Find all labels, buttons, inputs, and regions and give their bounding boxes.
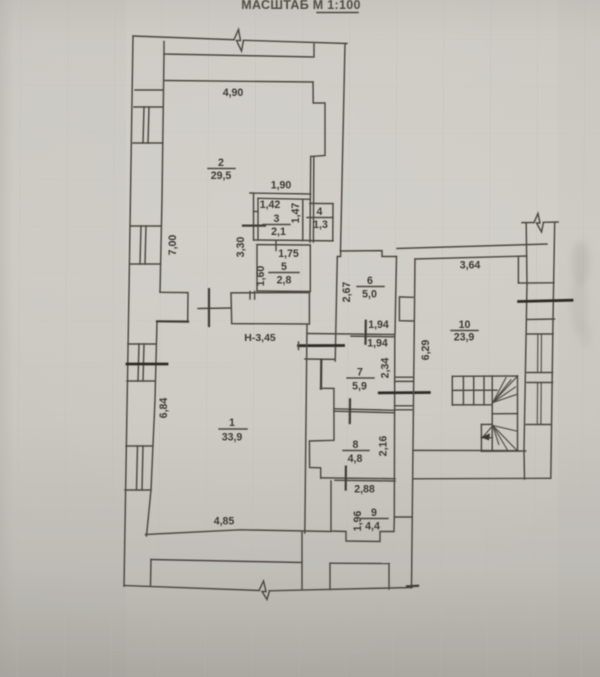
svg-text:33,9: 33,9 [222,432,243,444]
svg-text:1,75: 1,75 [278,248,299,260]
svg-text:2,67: 2,67 [341,282,353,303]
svg-text:1: 1 [229,417,235,429]
svg-text:2,16: 2,16 [378,436,390,457]
svg-text:2: 2 [218,157,224,169]
svg-text:7,00: 7,00 [167,235,179,256]
svg-text:6,29: 6,29 [420,340,432,361]
svg-text:2,1: 2,1 [271,226,286,238]
svg-text:2,88: 2,88 [354,484,375,496]
svg-text:10: 10 [459,319,471,331]
svg-text:8: 8 [353,439,359,451]
svg-text:3: 3 [274,213,280,225]
svg-text:МАСШТАБ М 1:100: МАСШТАБ М 1:100 [241,0,360,12]
svg-text:4,8: 4,8 [348,453,363,465]
svg-text:1,94: 1,94 [367,338,388,350]
svg-text:6,84: 6,84 [158,398,170,419]
svg-text:4,90: 4,90 [223,87,244,99]
svg-text:1,94: 1,94 [368,319,389,331]
svg-text:23,9: 23,9 [454,332,475,344]
svg-text:5: 5 [281,261,287,273]
svg-text:3,30: 3,30 [235,237,247,258]
svg-text:4,85: 4,85 [214,516,235,528]
svg-text:Н-3,45: Н-3,45 [244,332,276,344]
svg-text:2,8: 2,8 [277,275,292,287]
svg-text:1,96: 1,96 [352,511,364,532]
svg-text:6: 6 [367,275,373,287]
svg-text:1,47: 1,47 [290,203,302,224]
svg-text:1,90: 1,90 [271,180,292,192]
svg-text:5,0: 5,0 [362,289,377,301]
svg-text:4,4: 4,4 [365,521,380,533]
svg-text:2,34: 2,34 [380,358,392,379]
svg-text:4: 4 [317,206,323,218]
svg-text:1,60: 1,60 [255,266,267,287]
svg-text:3,64: 3,64 [460,260,481,272]
svg-text:7: 7 [357,367,363,379]
svg-text:1,3: 1,3 [313,219,328,231]
svg-text:29,5: 29,5 [211,170,232,182]
svg-text:5,9: 5,9 [352,381,367,393]
svg-text:1,42: 1,42 [260,199,281,211]
svg-text:9: 9 [371,507,377,519]
